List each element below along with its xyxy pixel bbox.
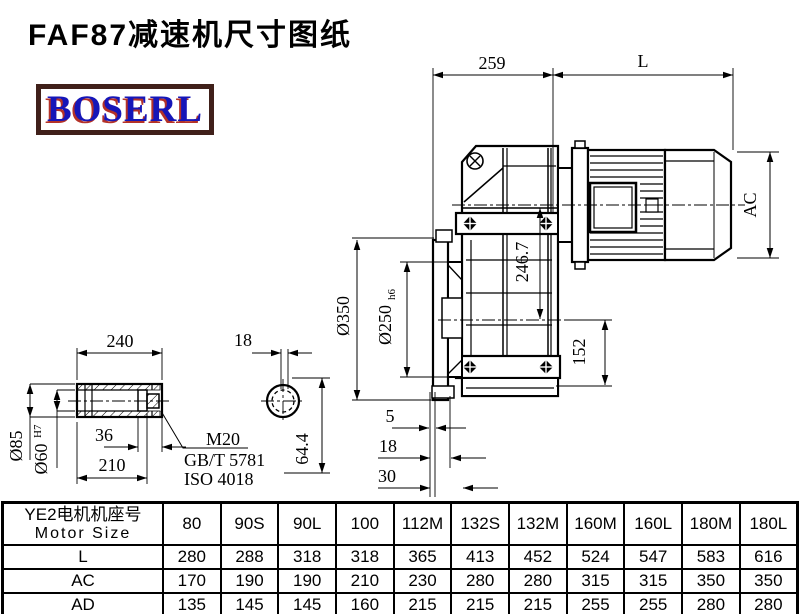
dim-d60-tolerance-label: H7	[32, 424, 44, 438]
dim-L-label: L	[638, 51, 649, 71]
frame-size-column-header: 132M	[509, 503, 567, 546]
dim-246-7-label: 246.7	[512, 242, 532, 283]
row-label: AC	[3, 569, 164, 593]
dim-d85-label: Ø85	[6, 431, 26, 462]
dim-AC-label: AC	[740, 192, 760, 217]
table-cell: 413	[451, 545, 509, 569]
table-cell: 230	[394, 569, 452, 593]
dim-36-label: 36	[95, 425, 113, 445]
table-cell: 280	[451, 569, 509, 593]
output-flange	[432, 230, 462, 400]
gearbox-housing	[456, 146, 560, 396]
dim-64-4-label: 64.4	[292, 433, 312, 465]
table-cell: 280	[740, 593, 798, 614]
table-row: L280288318318365413452524547583616	[3, 545, 798, 569]
motor-size-table: YE2电机机座号Motor Size8090S90L100112M132S132…	[1, 501, 799, 614]
dim-d60-label: Ø60	[31, 444, 51, 475]
dim-259-label: 259	[479, 53, 506, 73]
table-cell: 135	[163, 593, 221, 614]
dim-5-label: 5	[386, 406, 395, 426]
drawing-sheet: FAF87减速机尺寸图纸 BOSERL	[0, 0, 800, 614]
table-cell: 255	[624, 593, 682, 614]
table-row: AC170190190210230280280315315350350	[3, 569, 798, 593]
table-cell: 215	[451, 593, 509, 614]
dimension-labels: 259 L AC Ø350 Ø250 h6 246.7 152 5 18 30 …	[6, 51, 760, 489]
frame-size-column-header: 180M	[682, 503, 740, 546]
note-m20-label: M20	[206, 429, 240, 449]
table-cell: 170	[163, 569, 221, 593]
table-cell: 215	[394, 593, 452, 614]
note-gb-standard-label: GB/T 5781	[184, 450, 265, 470]
row-label: L	[3, 545, 164, 569]
table-cell: 190	[278, 569, 336, 593]
row-label: AD	[3, 593, 164, 614]
table-cell: 315	[624, 569, 682, 593]
frame-size-column-header: 90S	[221, 503, 279, 546]
dim-d250-tolerance-label: h6	[386, 289, 398, 301]
table-cell: 318	[278, 545, 336, 569]
dim-18-flange-label: 18	[379, 436, 397, 456]
table-cell: 215	[509, 593, 567, 614]
frame-size-column-header: 100	[336, 503, 394, 546]
extension-lines	[30, 68, 779, 497]
dim-d250-label: Ø250	[375, 305, 395, 345]
table-cell: 145	[221, 593, 279, 614]
hollow-shaft-detail	[77, 384, 162, 417]
dim-240-label: 240	[107, 331, 134, 351]
table-cell: 280	[509, 569, 567, 593]
table-header-row: YE2电机机座号Motor Size8090S90L100112M132S132…	[3, 503, 798, 546]
frame-size-column-header: 80	[163, 503, 221, 546]
table-cell: 524	[567, 545, 625, 569]
table-cell: 452	[509, 545, 567, 569]
frame-size-column-header: 180L	[740, 503, 798, 546]
table-cell: 616	[740, 545, 798, 569]
frame-size-column-header: 160L	[624, 503, 682, 546]
motor-size-header-cell: YE2电机机座号Motor Size	[3, 503, 164, 546]
table-cell: 583	[682, 545, 740, 569]
table-cell: 160	[336, 593, 394, 614]
table-cell: 255	[567, 593, 625, 614]
dimension-lines	[30, 75, 770, 488]
motor-size-header-en: Motor Size	[4, 525, 162, 543]
table-cell: 350	[682, 569, 740, 593]
dim-18-key-label: 18	[234, 330, 252, 350]
table-cell: 210	[336, 569, 394, 593]
table-cell: 280	[163, 545, 221, 569]
table-cell: 350	[740, 569, 798, 593]
frame-size-column-header: 132S	[451, 503, 509, 546]
frame-size-column-header: 112M	[394, 503, 452, 546]
table-cell: 315	[567, 569, 625, 593]
end-washer	[138, 390, 147, 411]
frame-size-column-header: 160M	[567, 503, 625, 546]
dim-30-label: 30	[378, 466, 396, 486]
note-iso-standard-label: ISO 4018	[184, 469, 254, 489]
dim-210-label: 210	[99, 455, 126, 475]
table-cell: 288	[221, 545, 279, 569]
dim-d350-label: Ø350	[333, 296, 353, 336]
table-cell: 365	[394, 545, 452, 569]
table-row: AD135145145160215215215255255280280	[3, 593, 798, 614]
frame-size-column-header: 90L	[278, 503, 336, 546]
motor-size-header-cn: YE2电机机座号	[4, 505, 162, 525]
table-cell: 318	[336, 545, 394, 569]
table-cell: 547	[624, 545, 682, 569]
table-cell: 280	[682, 593, 740, 614]
dim-152-label: 152	[569, 339, 589, 366]
motor-size-table-body: YE2电机机座号Motor Size8090S90L100112M132S132…	[3, 503, 798, 614]
table-cell: 190	[221, 569, 279, 593]
table-cell: 145	[278, 593, 336, 614]
